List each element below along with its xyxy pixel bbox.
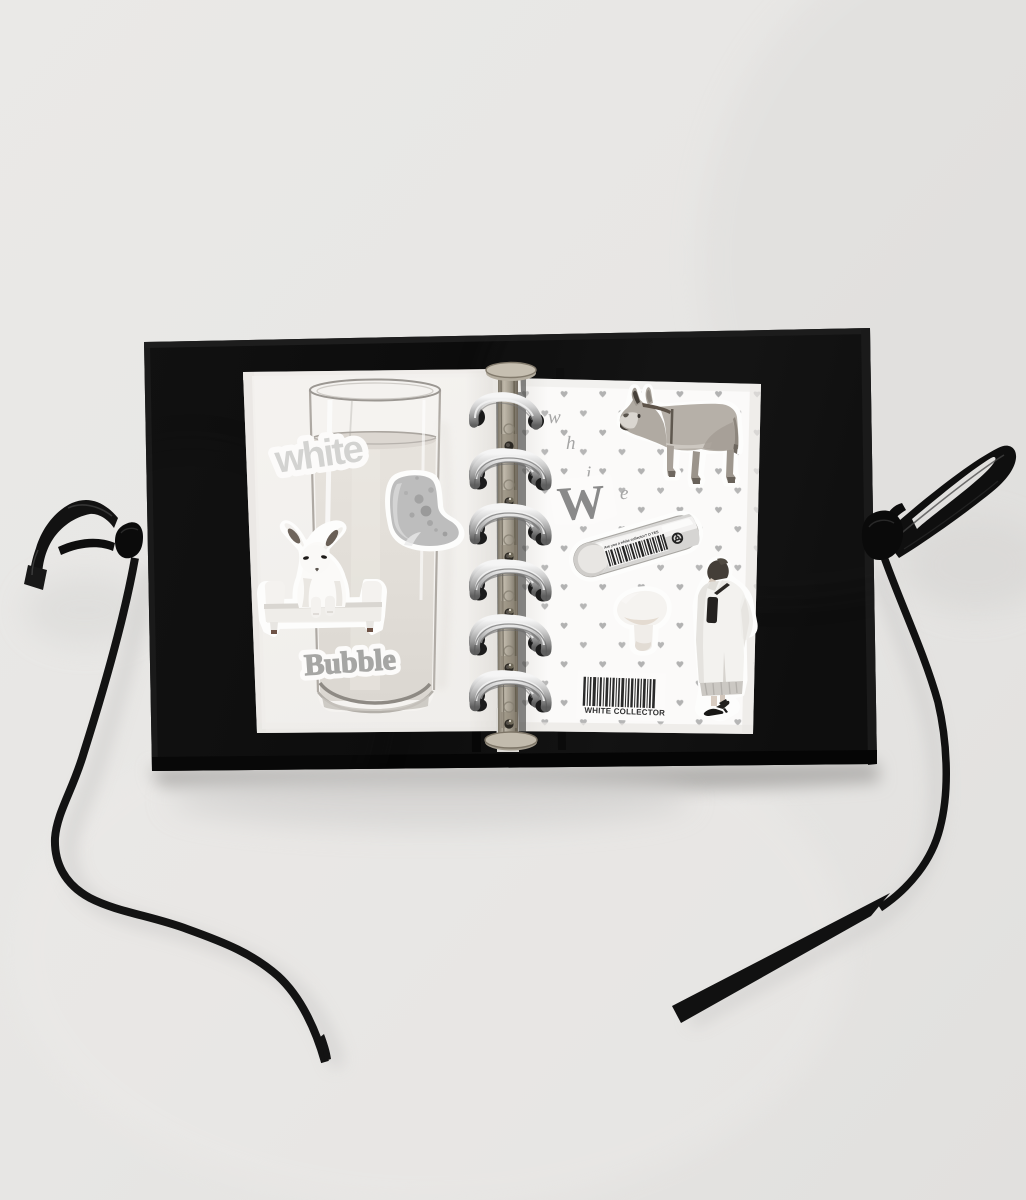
svg-text:e: e	[620, 483, 628, 504]
svg-text:Bubble: Bubble	[303, 643, 397, 682]
svg-text:w: w	[548, 407, 561, 428]
svg-text:W: W	[555, 475, 607, 531]
svg-text:h: h	[566, 433, 576, 454]
